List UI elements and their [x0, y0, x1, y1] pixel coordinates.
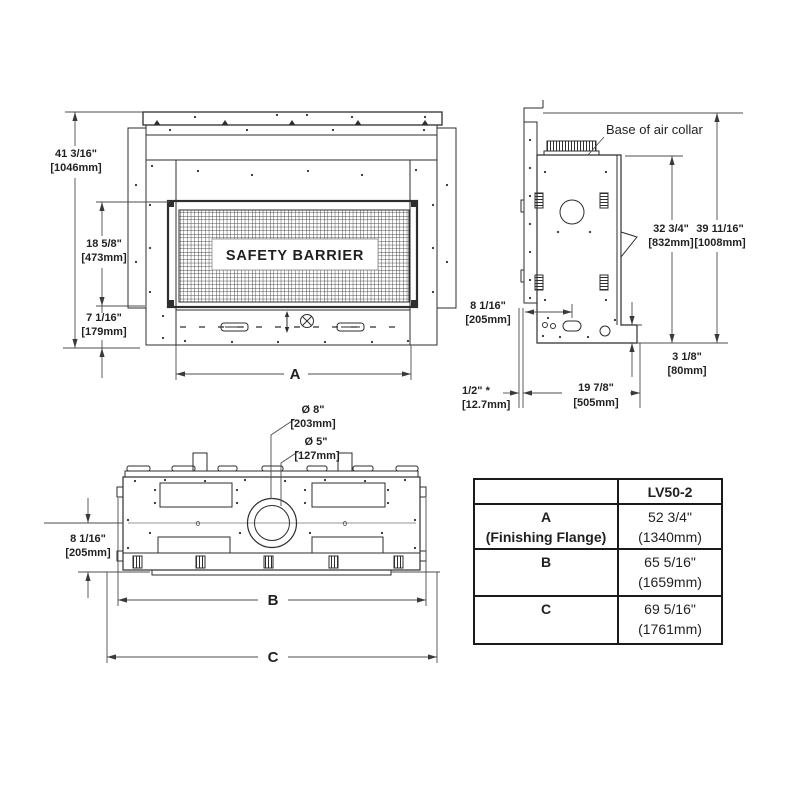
dim-total-height-in: 41 3/16" [55, 148, 97, 160]
spec-row-c-value: 69 5/16" (1761mm) [618, 596, 722, 644]
dim-depth-in: 19 7/8" [578, 382, 614, 394]
side-screw-dots [529, 139, 616, 338]
dim-base-step-in: 3 1/8" [672, 351, 702, 363]
dim-base-step-mm: [80mm] [667, 365, 706, 377]
row-label-line2: (Finishing Flange) [475, 527, 617, 547]
dim-flue-inner-mm: [127mm] [294, 450, 340, 462]
spec-table-header-row: LV50-2 [474, 479, 722, 504]
dim-center-offset-mm: [205mm] [65, 547, 111, 559]
centerline-zero-left: 0 [196, 521, 200, 528]
side-view-dimensions: Base of air collar 32 3/4" [832mm] 39 11… [462, 113, 746, 411]
dim-total-height-mm: [1046mm] [50, 162, 102, 174]
handle-right [337, 323, 364, 331]
dim-center-offset-in: 8 1/16" [70, 533, 106, 545]
dim-c-label: C [268, 649, 279, 666]
dim-depth-mm: [505mm] [573, 397, 619, 409]
diagram-canvas: SAFETY BARRIER [0, 0, 800, 800]
dim-overall-height-mm: [1008mm] [694, 237, 746, 249]
row-value-line1: 52 3/4" [619, 507, 721, 527]
dim-overall-height-in: 39 11/16" [696, 223, 743, 235]
top-view-dimensions: Ø 8" [203mm] Ø 5" [127mm] 8 1/16" [205mm… [44, 404, 440, 666]
dim-flue-outer-in: Ø 8" [302, 404, 325, 416]
flue-outer-leader [271, 419, 295, 499]
top-brackets [133, 556, 403, 568]
dim-flange-mm: [12.7mm] [462, 399, 511, 411]
dim-flue-outer-mm: [203mm] [290, 418, 336, 430]
front-left-flange [128, 128, 146, 308]
dim-opening-height-mm: [473mm] [81, 252, 127, 264]
side-brackets [535, 193, 608, 290]
dim-base-height-in: 7 1/16" [86, 312, 122, 324]
dim-a-label: A [290, 366, 301, 383]
row-label-line1: C [475, 599, 617, 619]
row-value-line2: (1340mm) [619, 527, 721, 547]
dim-body-height-in: 32 3/4" [653, 223, 689, 235]
top-vents [158, 483, 385, 553]
air-collar [547, 141, 596, 151]
spec-row-b-value: 65 5/16" (1659mm) [618, 549, 722, 596]
spec-row-a-label: A (Finishing Flange) [474, 504, 618, 549]
side-deflector-wedge [621, 232, 637, 257]
dim-inlet-offset-mm: [205mm] [465, 314, 511, 326]
table-row: A (Finishing Flange) 52 3/4" (1340mm) [474, 504, 722, 549]
spec-row-b-label: B [474, 549, 618, 596]
fireplace-dimension-drawing: SAFETY BARRIER [0, 0, 800, 800]
row-label-line1: B [475, 552, 617, 572]
side-top-bracket [524, 100, 543, 122]
dim-flange-in: 1/2" * [462, 385, 491, 397]
row-value-line1: 65 5/16" [619, 552, 721, 572]
top-screw-dots [127, 479, 416, 549]
dim-body-height-mm: [832mm] [648, 237, 694, 249]
damper-arrow-icon [285, 311, 289, 333]
top-view: 0 0 [117, 453, 426, 575]
dim-opening-height-in: 18 5/8" [86, 238, 122, 250]
front-right-flange [437, 128, 456, 308]
spec-table: LV50-2 A (Finishing Flange) 52 3/4" (134… [473, 478, 719, 645]
row-value-line2: (1659mm) [619, 572, 721, 592]
dim-b-label: B [268, 592, 279, 609]
valve-icon [301, 315, 314, 328]
clip-marks [154, 120, 428, 125]
row-label-line1: A [475, 507, 617, 527]
air-collar-label: Base of air collar [606, 122, 703, 137]
front-view: SAFETY BARRIER [128, 112, 456, 345]
side-knockout-circle [560, 200, 584, 224]
row-value-line1: 69 5/16" [619, 599, 721, 619]
top-tabs [127, 453, 418, 471]
dim-base-height-mm: [179mm] [81, 326, 127, 338]
top-strip [125, 471, 418, 477]
spec-row-c-label: C [474, 596, 618, 644]
row-value-line2: (1761mm) [619, 619, 721, 639]
handle-left [221, 323, 248, 331]
dim-flue-inner-in: Ø 5" [305, 436, 328, 448]
safety-barrier-text: SAFETY BARRIER [226, 248, 364, 264]
spec-header-empty-cell [474, 479, 618, 504]
spec-row-a-value: 52 3/4" (1340mm) [618, 504, 722, 549]
spec-header-model-cell: LV50-2 [618, 479, 722, 504]
centerline-zero-right: 0 [343, 521, 347, 528]
dim-inlet-offset-in: 8 1/16" [470, 300, 506, 312]
top-bottom-flange [152, 570, 391, 575]
table-row: B 65 5/16" (1659mm) [474, 549, 722, 596]
top-dim-arrowheads [85, 514, 437, 660]
table-row: C 69 5/16" (1761mm) [474, 596, 722, 644]
